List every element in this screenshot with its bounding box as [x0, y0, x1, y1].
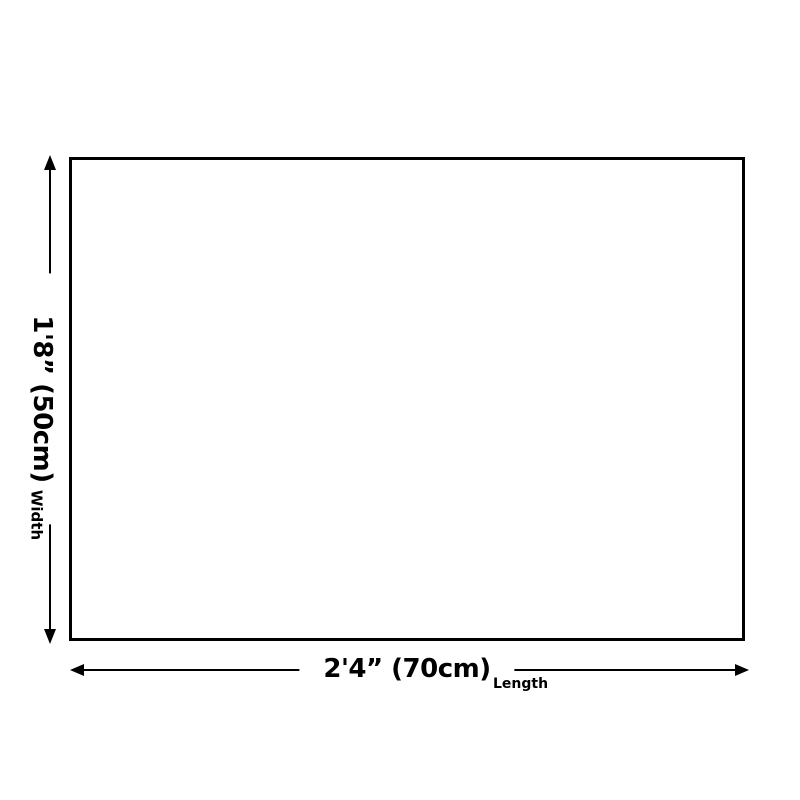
- width-value-label: 1'8” (50cm): [29, 273, 55, 524]
- arrow-right-icon: [735, 664, 749, 676]
- dimension-diagram: 1'8” (50cm) Width 2'4” (70cm) Length: [0, 0, 800, 800]
- length-axis-label: Length: [493, 677, 548, 691]
- arrow-up-icon: [44, 155, 56, 170]
- arrow-down-icon: [44, 629, 56, 644]
- length-value-label: 2'4” (70cm): [299, 656, 514, 682]
- arrow-left-icon: [70, 664, 84, 676]
- product-outline-rectangle: [69, 157, 745, 641]
- width-axis-label: Width: [29, 490, 44, 540]
